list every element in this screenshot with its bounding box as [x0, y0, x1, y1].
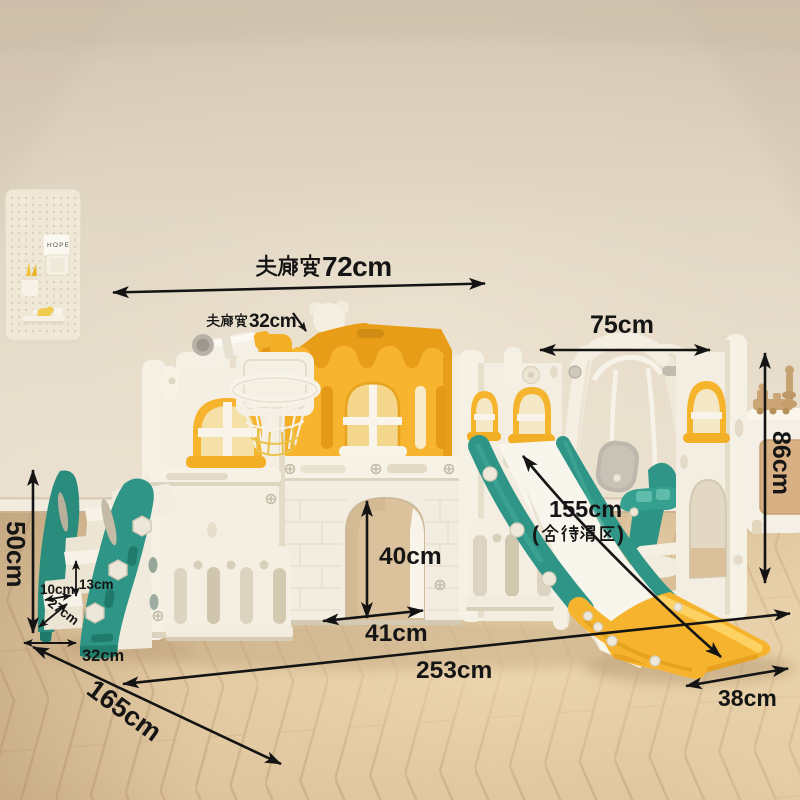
svg-text:10cm: 10cm: [40, 582, 75, 597]
svg-text:32cm: 32cm: [249, 311, 296, 332]
svg-text:13cm: 13cm: [79, 577, 114, 592]
svg-text:32cm: 32cm: [82, 647, 124, 665]
svg-text:(: (: [532, 523, 539, 546]
svg-text:HOPE: HOPE: [47, 242, 70, 249]
svg-text:72cm: 72cm: [322, 251, 392, 282]
svg-text:75cm: 75cm: [590, 311, 654, 339]
svg-text:86cm: 86cm: [767, 431, 795, 495]
svg-text:): ): [617, 523, 624, 546]
svg-text:40cm: 40cm: [379, 543, 442, 570]
svg-text:50cm: 50cm: [1, 521, 31, 588]
svg-text:41cm: 41cm: [365, 620, 428, 647]
svg-text:155cm: 155cm: [549, 496, 622, 522]
svg-text:253cm: 253cm: [416, 657, 492, 684]
svg-text:38cm: 38cm: [718, 685, 777, 711]
